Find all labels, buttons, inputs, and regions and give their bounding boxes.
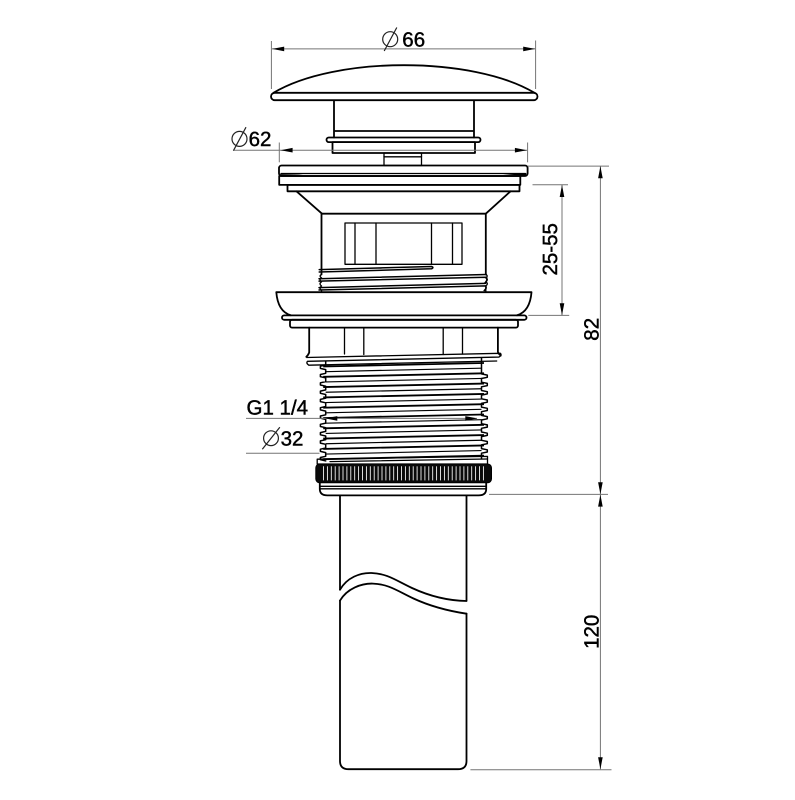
svg-text:62: 62 xyxy=(249,128,272,151)
svg-text:82: 82 xyxy=(581,318,604,341)
svg-text:120: 120 xyxy=(580,615,603,649)
svg-text:25-55: 25-55 xyxy=(539,223,562,275)
svg-text:66: 66 xyxy=(402,28,425,51)
svg-text:G1 1/4: G1 1/4 xyxy=(247,397,309,420)
svg-text:32: 32 xyxy=(281,428,304,451)
